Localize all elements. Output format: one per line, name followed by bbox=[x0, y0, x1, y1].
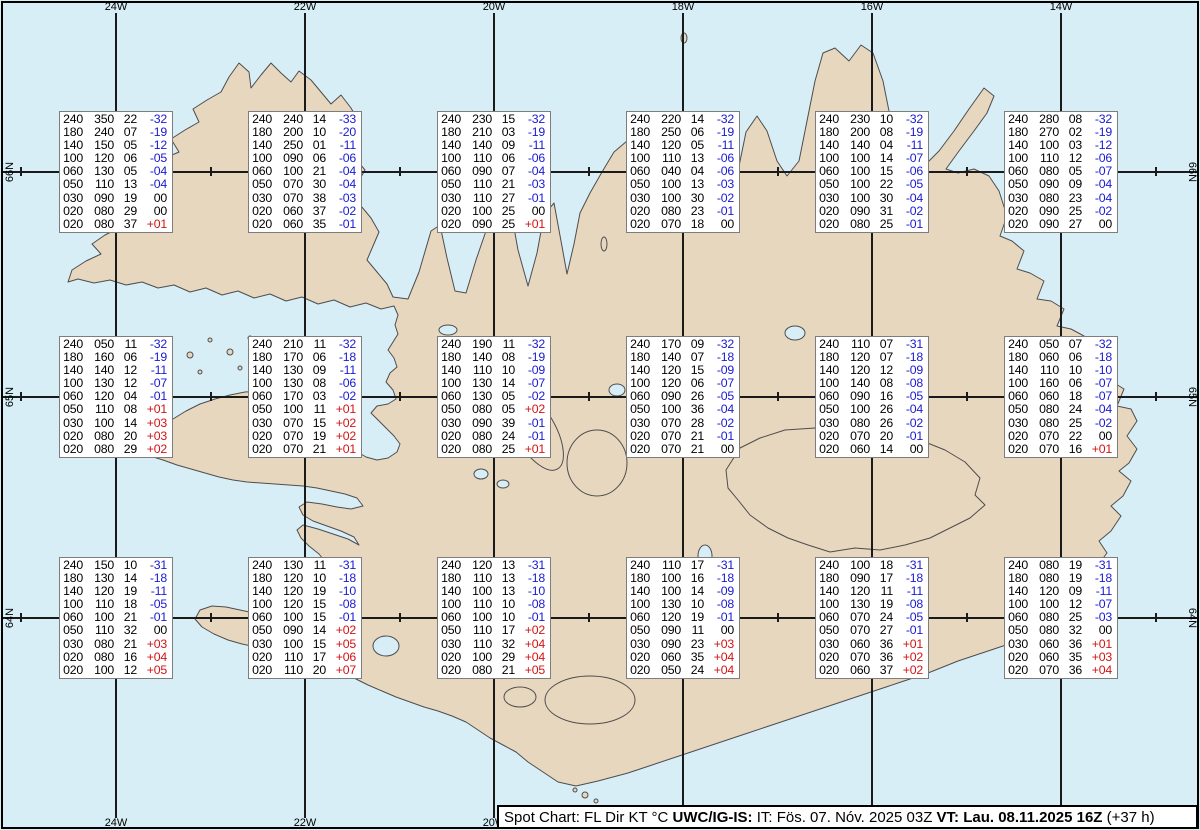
wind-speed-kt: 19 bbox=[307, 430, 326, 443]
parallel-label-right-65N: 65N bbox=[1186, 385, 1198, 409]
temperature-c: -01 bbox=[331, 218, 356, 231]
station-level-row: 02007016+01 bbox=[1007, 443, 1115, 456]
wind-direction: 070 bbox=[276, 417, 303, 430]
flight-level: 020 bbox=[1007, 664, 1028, 677]
wind-direction: 090 bbox=[87, 192, 114, 205]
wind-speed-kt: 23 bbox=[685, 205, 704, 218]
station-level-row: 02008025+01 bbox=[440, 443, 548, 456]
wind-speed-kt: 24 bbox=[496, 430, 515, 443]
station-box-66N-20W: 24023015-3218021003-1914014009-111001100… bbox=[437, 111, 551, 233]
lake-myvatn bbox=[785, 326, 805, 340]
flight-level: 030 bbox=[1007, 192, 1028, 205]
flight-level: 030 bbox=[629, 417, 650, 430]
flight-level: 050 bbox=[251, 624, 272, 637]
station-level-row: 0200702100 bbox=[629, 443, 737, 456]
wind-speed-kt: 32 bbox=[118, 624, 137, 637]
station-level-row: 05010026-04 bbox=[818, 403, 926, 416]
flight-level: 020 bbox=[629, 443, 650, 456]
wind-direction: 080 bbox=[465, 664, 492, 677]
wind-direction: 060 bbox=[843, 638, 870, 651]
temperature-c: -02 bbox=[1087, 205, 1112, 218]
station-level-row: 05009009-04 bbox=[1007, 178, 1115, 191]
flight-level: 030 bbox=[818, 638, 839, 651]
station-level-row: 02007036+04 bbox=[1007, 664, 1115, 677]
flight-level: 050 bbox=[62, 178, 83, 191]
station-level-row: 0500803200 bbox=[1007, 624, 1115, 637]
graticule-tick bbox=[588, 392, 590, 401]
flight-level: 050 bbox=[440, 178, 461, 191]
temperature-c: +01 bbox=[1087, 638, 1112, 651]
flight-level: 020 bbox=[440, 651, 461, 664]
temperature-c: 00 bbox=[1087, 218, 1112, 231]
wind-speed-kt: 24 bbox=[685, 664, 704, 677]
flight-level: 030 bbox=[629, 192, 650, 205]
temperature-c: +01 bbox=[898, 638, 923, 651]
station-level-row: 02009025-02 bbox=[1007, 205, 1115, 218]
temperature-c: -04 bbox=[331, 178, 356, 191]
flight-level: 050 bbox=[1007, 178, 1028, 191]
wind-speed-kt: 11 bbox=[307, 403, 326, 416]
wind-direction: 070 bbox=[843, 430, 870, 443]
flight-level: 020 bbox=[818, 218, 839, 231]
wind-speed-kt: 17 bbox=[496, 624, 515, 637]
temperature-c: -03 bbox=[709, 178, 734, 191]
station-level-row: 02006035+03 bbox=[1007, 651, 1115, 664]
station-level-row: 05011008+01 bbox=[62, 403, 170, 416]
temperature-c: +03 bbox=[1087, 651, 1112, 664]
wind-direction: 060 bbox=[843, 443, 870, 456]
station-level-row: 03011032+04 bbox=[440, 638, 548, 651]
flight-level: 020 bbox=[629, 651, 650, 664]
wind-speed-kt: 20 bbox=[118, 430, 137, 443]
flight-level: 020 bbox=[629, 664, 650, 677]
wind-direction: 100 bbox=[276, 638, 303, 651]
wind-direction: 090 bbox=[465, 417, 492, 430]
parallel-label-right-66N: 66N bbox=[1186, 160, 1198, 184]
station-level-row: 02008023-01 bbox=[629, 205, 737, 218]
wind-direction: 070 bbox=[1032, 443, 1059, 456]
flight-level: 020 bbox=[62, 218, 83, 231]
temperature-c: +01 bbox=[331, 403, 356, 416]
station-level-row: 02008029+02 bbox=[62, 443, 170, 456]
flight-level: 050 bbox=[818, 624, 839, 637]
station-level-row: 02008037+01 bbox=[62, 218, 170, 231]
wind-speed-kt: 27 bbox=[1063, 218, 1082, 231]
station-level-row: 02006037+02 bbox=[818, 664, 926, 677]
station-level-row: 0200701800 bbox=[629, 218, 737, 231]
graticule-tick bbox=[399, 392, 401, 401]
wind-speed-kt: 21 bbox=[496, 178, 515, 191]
parallel-label-left-64N: 64N bbox=[4, 606, 16, 630]
temperature-c: -04 bbox=[1087, 178, 1112, 191]
graticule-tick bbox=[966, 167, 968, 176]
wind-speed-kt: 25 bbox=[496, 218, 515, 231]
flight-level: 030 bbox=[251, 192, 272, 205]
flight-level: 050 bbox=[818, 178, 839, 191]
wind-speed-kt: 14 bbox=[874, 443, 893, 456]
flight-level: 030 bbox=[818, 417, 839, 430]
temperature-c: 00 bbox=[142, 205, 167, 218]
station-level-row: 05008024-04 bbox=[1007, 403, 1115, 416]
flight-level: 020 bbox=[1007, 443, 1028, 456]
wind-speed-kt: 29 bbox=[496, 651, 515, 664]
station-level-row: 03008025-02 bbox=[1007, 417, 1115, 430]
station-level-row: 02010012+05 bbox=[62, 664, 170, 677]
temperature-c: -05 bbox=[898, 178, 923, 191]
wind-speed-kt: 29 bbox=[118, 443, 137, 456]
meridian-label-top-18W: 18W bbox=[672, 1, 695, 13]
temperature-c: +05 bbox=[520, 664, 545, 677]
wind-direction: 090 bbox=[654, 624, 681, 637]
temperature-c: +05 bbox=[142, 664, 167, 677]
temperature-c: +02 bbox=[142, 443, 167, 456]
wind-direction: 100 bbox=[843, 178, 870, 191]
wind-direction: 080 bbox=[87, 651, 114, 664]
station-level-row: 05010022-05 bbox=[818, 178, 926, 191]
station-box-64N-22W: 24013011-3118012010-1814012019-101001201… bbox=[248, 557, 362, 679]
wind-speed-kt: 11 bbox=[685, 624, 704, 637]
flight-level: 020 bbox=[818, 443, 839, 456]
wind-speed-kt: 13 bbox=[118, 178, 137, 191]
wind-direction: 100 bbox=[87, 417, 114, 430]
station-level-row: 02007036+02 bbox=[818, 651, 926, 664]
station-level-row: 02007021-01 bbox=[629, 430, 737, 443]
flight-level: 050 bbox=[62, 403, 83, 416]
temperature-c: +04 bbox=[1087, 664, 1112, 677]
wind-direction: 070 bbox=[843, 624, 870, 637]
wind-speed-kt: 15 bbox=[307, 417, 326, 430]
flight-level: 020 bbox=[629, 430, 650, 443]
flight-level: 020 bbox=[440, 218, 461, 231]
wind-speed-kt: 21 bbox=[685, 443, 704, 456]
wind-speed-kt: 38 bbox=[307, 192, 326, 205]
station-box-65N-16W: 24011007-3118012007-1814012012-091001400… bbox=[815, 336, 929, 458]
station-level-row: 02007020-01 bbox=[818, 430, 926, 443]
wind-speed-kt: 23 bbox=[1063, 192, 1082, 205]
flight-level: 020 bbox=[440, 430, 461, 443]
wind-direction: 090 bbox=[1032, 218, 1059, 231]
wind-speed-kt: 36 bbox=[1063, 664, 1082, 677]
station-level-row: 03009023+03 bbox=[629, 638, 737, 651]
temperature-c: +03 bbox=[142, 430, 167, 443]
meridian-label-bottom-24W: 24W bbox=[105, 817, 128, 829]
graticule-tick bbox=[966, 613, 968, 622]
station-box-66N-18W: 24022014-3218025006-1914012005-111001101… bbox=[626, 111, 740, 233]
flight-level: 020 bbox=[818, 664, 839, 677]
station-level-row: 03009039-01 bbox=[440, 417, 548, 430]
station-level-row: 0501103200 bbox=[62, 624, 170, 637]
graticule-tick bbox=[588, 613, 590, 622]
station-level-row: 03008026-02 bbox=[818, 417, 926, 430]
temperature-c: 00 bbox=[1087, 430, 1112, 443]
lake bbox=[474, 469, 488, 479]
temperature-c: -02 bbox=[709, 417, 734, 430]
wind-direction: 080 bbox=[87, 638, 114, 651]
wind-speed-kt: 13 bbox=[685, 178, 704, 191]
wind-speed-kt: 26 bbox=[874, 403, 893, 416]
wind-speed-kt: 28 bbox=[685, 417, 704, 430]
graticule-tick bbox=[777, 392, 779, 401]
wind-direction: 070 bbox=[1032, 430, 1059, 443]
flight-level: 050 bbox=[440, 624, 461, 637]
wind-speed-kt: 27 bbox=[874, 624, 893, 637]
wind-direction: 080 bbox=[87, 430, 114, 443]
station-box-66N-14W: 24028008-3218027002-1914010003-121001101… bbox=[1004, 111, 1118, 233]
station-level-row: 03008023-04 bbox=[1007, 192, 1115, 205]
flight-level: 020 bbox=[440, 205, 461, 218]
station-box-65N-18W: 24017009-3218014007-1814012015-091001200… bbox=[626, 336, 740, 458]
wind-direction: 050 bbox=[654, 664, 681, 677]
temperature-c: +04 bbox=[709, 664, 734, 677]
station-level-row: 05010036-04 bbox=[629, 403, 737, 416]
temperature-c: 00 bbox=[709, 218, 734, 231]
meridian-label-top-22W: 22W bbox=[294, 1, 317, 13]
wind-speed-kt: 27 bbox=[496, 192, 515, 205]
station-level-row: 05011021-03 bbox=[440, 178, 548, 191]
temperature-c: -01 bbox=[898, 430, 923, 443]
wind-direction: 080 bbox=[1032, 624, 1059, 637]
station-level-row: 03006036+01 bbox=[1007, 638, 1115, 651]
island-hrisey bbox=[601, 237, 607, 251]
station-box-66N-22W: 24024014-3318020010-2014025001-111000900… bbox=[248, 111, 362, 233]
wind-direction: 070 bbox=[276, 430, 303, 443]
station-level-row: 03007028-02 bbox=[629, 417, 737, 430]
wind-direction: 110 bbox=[465, 178, 492, 191]
parallel-label-left-66N: 66N bbox=[4, 160, 16, 184]
flight-level: 030 bbox=[629, 638, 650, 651]
wind-direction: 100 bbox=[843, 403, 870, 416]
temperature-c: +05 bbox=[331, 638, 356, 651]
temperature-c: -04 bbox=[142, 178, 167, 191]
status-bar-segment: UWC/IG-IS: bbox=[673, 809, 753, 826]
flight-level: 020 bbox=[251, 205, 272, 218]
flight-level: 030 bbox=[440, 192, 461, 205]
graticule-tick bbox=[1155, 167, 1157, 176]
wind-speed-kt: 35 bbox=[307, 218, 326, 231]
wind-direction: 100 bbox=[654, 192, 681, 205]
wind-direction: 110 bbox=[276, 664, 303, 677]
flight-level: 050 bbox=[251, 403, 272, 416]
station-level-row: 0300901900 bbox=[62, 192, 170, 205]
wind-speed-kt: 24 bbox=[1063, 403, 1082, 416]
wind-speed-kt: 30 bbox=[307, 178, 326, 191]
flight-level: 020 bbox=[251, 664, 272, 677]
wind-direction: 110 bbox=[87, 624, 114, 637]
station-level-row: 05011017+02 bbox=[440, 624, 548, 637]
temperature-c: -01 bbox=[898, 218, 923, 231]
flight-level: 030 bbox=[62, 638, 83, 651]
flight-level: 050 bbox=[440, 403, 461, 416]
station-level-row: 0500901100 bbox=[629, 624, 737, 637]
wind-speed-kt: 19 bbox=[118, 192, 137, 205]
station-box-64N-16W: 24010018-3118009017-1814012011-111001301… bbox=[815, 557, 929, 679]
wind-speed-kt: 21 bbox=[118, 638, 137, 651]
lake-blondulon bbox=[609, 384, 625, 396]
station-level-row: 02011017+06 bbox=[251, 651, 359, 664]
temperature-c: -01 bbox=[898, 624, 923, 637]
wind-direction: 080 bbox=[87, 205, 114, 218]
flight-level: 020 bbox=[251, 218, 272, 231]
wind-direction: 060 bbox=[654, 651, 681, 664]
station-level-row: 03007015+02 bbox=[251, 417, 359, 430]
wind-direction: 070 bbox=[654, 417, 681, 430]
station-level-row: 03006036+01 bbox=[818, 638, 926, 651]
station-level-row: 02007021+01 bbox=[251, 443, 359, 456]
station-level-row: 05010013-03 bbox=[629, 178, 737, 191]
meridian-label-bottom-22W: 22W bbox=[294, 817, 317, 829]
lagoon-hop bbox=[439, 325, 457, 335]
temperature-c: +06 bbox=[331, 651, 356, 664]
station-level-row: 03008021+03 bbox=[62, 638, 170, 651]
wind-speed-kt: 26 bbox=[874, 417, 893, 430]
station-level-row: 02008016+04 bbox=[62, 651, 170, 664]
wind-direction: 100 bbox=[843, 192, 870, 205]
flight-level: 020 bbox=[251, 430, 272, 443]
meridian-label-top-24W: 24W bbox=[105, 1, 128, 13]
flight-level: 050 bbox=[629, 403, 650, 416]
graticule-tick bbox=[777, 167, 779, 176]
station-level-row: 0200702200 bbox=[1007, 430, 1115, 443]
station-level-row: 05007030-04 bbox=[251, 178, 359, 191]
wind-speed-kt: 21 bbox=[496, 664, 515, 677]
station-level-row: 02009031-02 bbox=[818, 205, 926, 218]
vestmannaeyjar-islands bbox=[573, 788, 598, 803]
temperature-c: 00 bbox=[142, 192, 167, 205]
wind-direction: 070 bbox=[276, 192, 303, 205]
wind-direction: 060 bbox=[1032, 638, 1059, 651]
wind-speed-kt: 20 bbox=[874, 430, 893, 443]
wind-speed-kt: 18 bbox=[685, 218, 704, 231]
status-bar-segment: IT: Fös. 07. Nóv. 2025 03Z bbox=[753, 809, 937, 826]
wind-speed-kt: 36 bbox=[685, 403, 704, 416]
flight-level: 050 bbox=[818, 403, 839, 416]
wind-speed-kt: 32 bbox=[1063, 624, 1082, 637]
wind-direction: 070 bbox=[654, 430, 681, 443]
graticule-tick bbox=[20, 613, 22, 622]
wind-direction: 060 bbox=[843, 664, 870, 677]
flight-level: 050 bbox=[251, 178, 272, 191]
flight-level: 050 bbox=[1007, 403, 1028, 416]
status-bar-segment: (+37 h) bbox=[1102, 809, 1154, 826]
station-level-row: 05010011+01 bbox=[251, 403, 359, 416]
wind-direction: 100 bbox=[654, 403, 681, 416]
temperature-c: +01 bbox=[142, 218, 167, 231]
temperature-c: +04 bbox=[142, 651, 167, 664]
flight-level: 030 bbox=[1007, 417, 1028, 430]
wind-speed-kt: 12 bbox=[118, 664, 137, 677]
lake bbox=[497, 480, 509, 488]
temperature-c: +03 bbox=[142, 417, 167, 430]
flight-level: 020 bbox=[818, 205, 839, 218]
temperature-c: +07 bbox=[331, 664, 356, 677]
wind-speed-kt: 14 bbox=[118, 417, 137, 430]
station-level-row: 03010015+05 bbox=[251, 638, 359, 651]
flight-level: 020 bbox=[1007, 205, 1028, 218]
hofsjokull-glacier bbox=[567, 430, 627, 496]
wind-speed-kt: 21 bbox=[307, 443, 326, 456]
flight-level: 030 bbox=[440, 638, 461, 651]
temperature-c: +04 bbox=[520, 638, 545, 651]
temperature-c: +01 bbox=[331, 443, 356, 456]
temperature-c: +02 bbox=[520, 403, 545, 416]
wind-speed-kt: 36 bbox=[1063, 638, 1082, 651]
flight-level: 020 bbox=[62, 664, 83, 677]
wind-direction: 090 bbox=[1032, 205, 1059, 218]
flight-level: 020 bbox=[62, 443, 83, 456]
wind-speed-kt: 29 bbox=[118, 205, 137, 218]
wind-direction: 070 bbox=[843, 651, 870, 664]
temperature-c: +04 bbox=[709, 651, 734, 664]
temperature-c: +02 bbox=[331, 417, 356, 430]
temperature-c: 00 bbox=[709, 624, 734, 637]
flight-level: 030 bbox=[1007, 638, 1028, 651]
wind-direction: 090 bbox=[276, 624, 303, 637]
flight-level: 050 bbox=[1007, 624, 1028, 637]
flight-level: 020 bbox=[818, 430, 839, 443]
wind-speed-kt: 25 bbox=[1063, 417, 1082, 430]
wind-speed-kt: 25 bbox=[1063, 205, 1082, 218]
wind-speed-kt: 15 bbox=[307, 638, 326, 651]
wind-speed-kt: 31 bbox=[874, 205, 893, 218]
wind-direction: 100 bbox=[276, 403, 303, 416]
flight-level: 050 bbox=[62, 624, 83, 637]
lake-thingvallavatn bbox=[373, 636, 399, 656]
wind-direction: 100 bbox=[465, 205, 492, 218]
temperature-c: -03 bbox=[520, 178, 545, 191]
temperature-c: +02 bbox=[331, 430, 356, 443]
graticule-tick bbox=[210, 167, 212, 176]
temperature-c: +01 bbox=[1087, 443, 1112, 456]
wind-direction: 110 bbox=[276, 651, 303, 664]
temperature-c: +01 bbox=[520, 218, 545, 231]
flight-level: 020 bbox=[440, 664, 461, 677]
temperature-c: +03 bbox=[142, 638, 167, 651]
wind-direction: 080 bbox=[843, 417, 870, 430]
temperature-c: +01 bbox=[520, 443, 545, 456]
station-box-65N-20W: 24019011-3218014008-1914011010-091001301… bbox=[437, 336, 551, 458]
weather-spot-chart: 24W24W22W22W20W20W18W18W16W16W14W14W66N6… bbox=[0, 0, 1200, 830]
wind-direction: 080 bbox=[1032, 192, 1059, 205]
wind-direction: 080 bbox=[1032, 417, 1059, 430]
graticule-tick bbox=[20, 392, 22, 401]
station-level-row: 02006037-02 bbox=[251, 205, 359, 218]
station-level-row: 02010029+04 bbox=[440, 651, 548, 664]
flight-level: 030 bbox=[62, 192, 83, 205]
wind-direction: 100 bbox=[465, 651, 492, 664]
station-level-row: 03010030-02 bbox=[629, 192, 737, 205]
temperature-c: 00 bbox=[898, 443, 923, 456]
wind-speed-kt: 05 bbox=[496, 403, 515, 416]
flight-level: 020 bbox=[62, 430, 83, 443]
wind-speed-kt: 30 bbox=[685, 192, 704, 205]
station-box-65N-22W: 24021011-3218017006-1814013009-111001300… bbox=[248, 336, 362, 458]
myrdalsjokull-glacier bbox=[545, 676, 635, 724]
eyjafjallajokull-glacier bbox=[504, 687, 536, 707]
station-level-row: 02006035-01 bbox=[251, 218, 359, 231]
wind-speed-kt: 36 bbox=[874, 638, 893, 651]
wind-speed-kt: 35 bbox=[685, 651, 704, 664]
wind-direction: 090 bbox=[843, 205, 870, 218]
wind-direction: 090 bbox=[465, 218, 492, 231]
wind-direction: 080 bbox=[87, 443, 114, 456]
station-box-66N-24W: 24035022-3218024007-1914015005-121001200… bbox=[59, 111, 173, 233]
flight-level: 020 bbox=[629, 205, 650, 218]
station-level-row: 02005024+04 bbox=[629, 664, 737, 677]
station-box-65N-24W: 24005011-3218016006-1914014012-111001301… bbox=[59, 336, 173, 458]
temperature-c: +02 bbox=[898, 664, 923, 677]
temperature-c: +02 bbox=[898, 651, 923, 664]
wind-direction: 080 bbox=[465, 443, 492, 456]
